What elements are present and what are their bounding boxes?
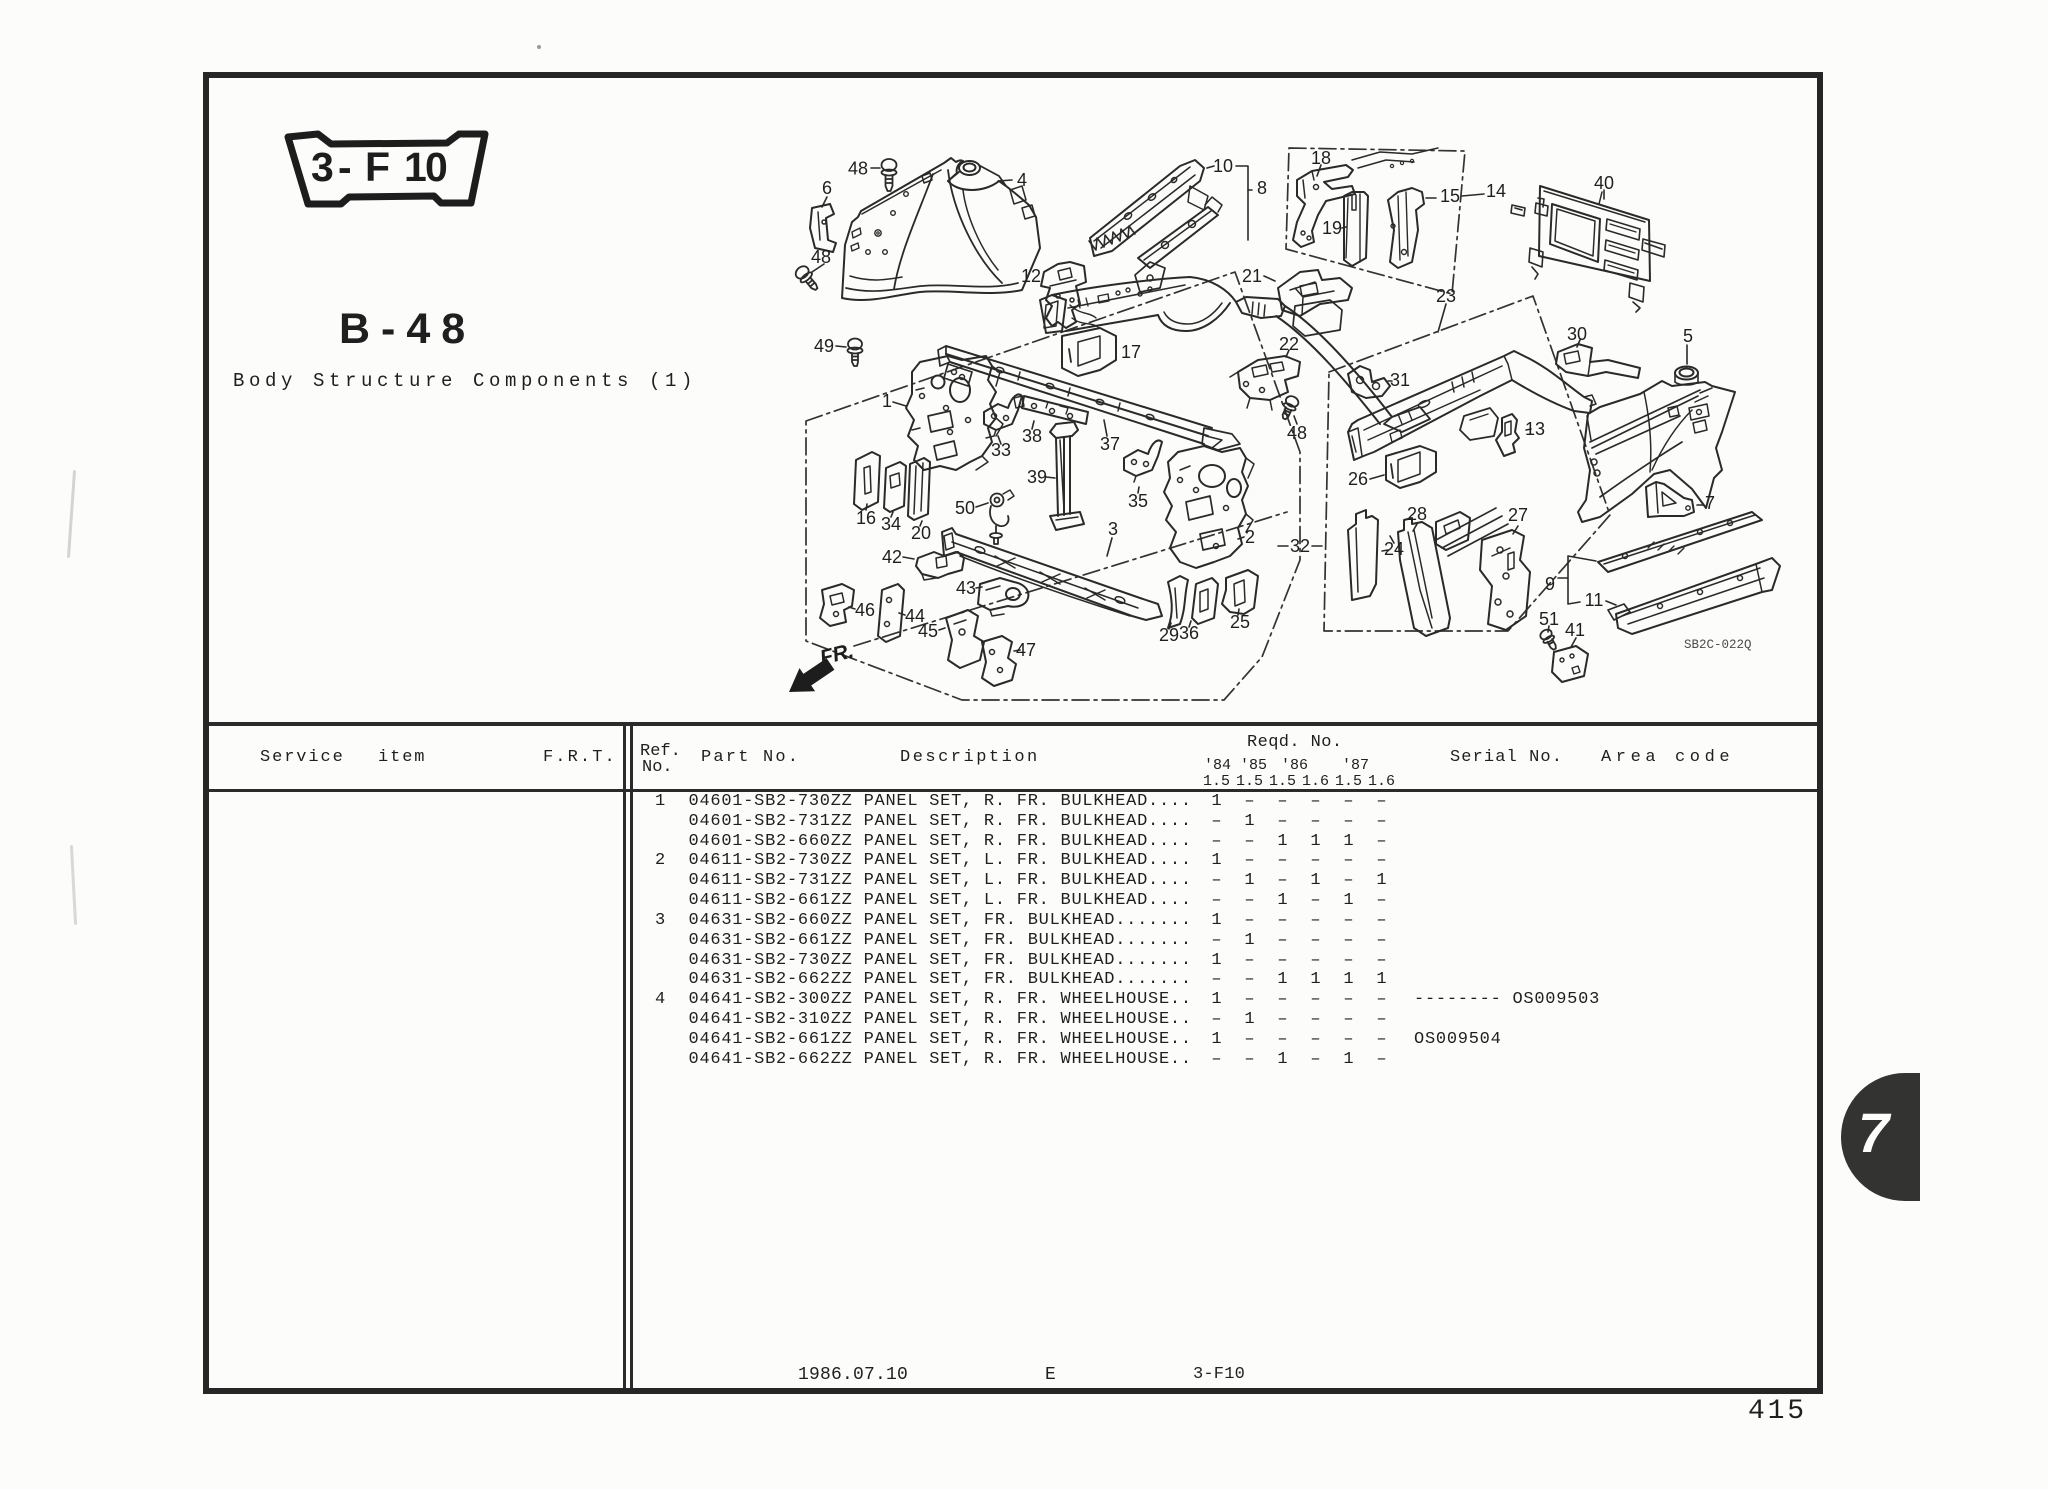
svg-text:18: 18 xyxy=(1311,148,1331,168)
svg-text:0: 0 xyxy=(425,144,448,190)
svg-text:26: 26 xyxy=(1348,469,1368,489)
svg-text:47: 47 xyxy=(1016,640,1036,660)
svg-text:35: 35 xyxy=(1128,491,1148,511)
svg-text:34: 34 xyxy=(881,514,901,534)
svg-text:32: 32 xyxy=(1290,536,1310,556)
svg-text:43: 43 xyxy=(956,578,976,598)
svg-text:36: 36 xyxy=(1179,623,1199,643)
svg-text:50: 50 xyxy=(955,498,975,518)
svg-text:2: 2 xyxy=(1245,527,1255,547)
svg-text:22: 22 xyxy=(1279,334,1299,354)
svg-text:14: 14 xyxy=(1486,181,1506,201)
svg-text:46: 46 xyxy=(855,600,875,620)
svg-text:19: 19 xyxy=(1322,218,1342,238)
svg-text:FR.: FR. xyxy=(818,639,856,670)
svg-text:24: 24 xyxy=(1384,539,1404,559)
svg-text:45: 45 xyxy=(918,621,938,641)
svg-text:49: 49 xyxy=(814,336,834,356)
svg-text:48: 48 xyxy=(1287,423,1307,443)
svg-text:39: 39 xyxy=(1027,467,1047,487)
svg-text:3: 3 xyxy=(311,144,334,190)
svg-text:15: 15 xyxy=(1440,186,1460,206)
svg-text:33: 33 xyxy=(991,440,1011,460)
svg-text:48: 48 xyxy=(811,247,831,267)
svg-text:48: 48 xyxy=(848,159,868,179)
svg-text:9: 9 xyxy=(1545,574,1555,594)
svg-text:20: 20 xyxy=(911,523,931,543)
svg-text:51: 51 xyxy=(1539,609,1559,629)
svg-text:SB2C-022Q: SB2C-022Q xyxy=(1684,638,1752,652)
svg-text:1: 1 xyxy=(882,391,892,411)
svg-text:21: 21 xyxy=(1242,266,1262,286)
svg-text:13: 13 xyxy=(1525,419,1545,439)
svg-text:30: 30 xyxy=(1567,324,1587,344)
svg-text:27: 27 xyxy=(1508,505,1528,525)
svg-text:37: 37 xyxy=(1100,434,1120,454)
svg-text:11: 11 xyxy=(1585,590,1604,610)
svg-text:1: 1 xyxy=(404,144,427,190)
svg-text:28: 28 xyxy=(1407,504,1427,524)
svg-text:29: 29 xyxy=(1159,625,1179,645)
svg-text:12: 12 xyxy=(1021,266,1041,286)
svg-text:40: 40 xyxy=(1594,173,1614,193)
svg-text:41: 41 xyxy=(1565,620,1585,640)
svg-text:16: 16 xyxy=(856,508,876,528)
svg-text:25: 25 xyxy=(1230,612,1250,632)
svg-text:38: 38 xyxy=(1022,426,1042,446)
svg-text:6: 6 xyxy=(822,178,832,198)
svg-text:8: 8 xyxy=(1257,178,1267,198)
svg-text:31: 31 xyxy=(1390,370,1410,390)
svg-text:3: 3 xyxy=(1108,519,1118,539)
svg-text:4: 4 xyxy=(1017,170,1027,190)
svg-text:10: 10 xyxy=(1213,156,1233,176)
svg-text:5: 5 xyxy=(1683,326,1693,346)
svg-text:17: 17 xyxy=(1121,342,1141,362)
svg-text:F: F xyxy=(365,144,390,190)
svg-text:-: - xyxy=(338,144,352,190)
svg-text:42: 42 xyxy=(882,547,902,567)
svg-text:23: 23 xyxy=(1436,286,1456,306)
svg-text:7: 7 xyxy=(1705,493,1715,513)
